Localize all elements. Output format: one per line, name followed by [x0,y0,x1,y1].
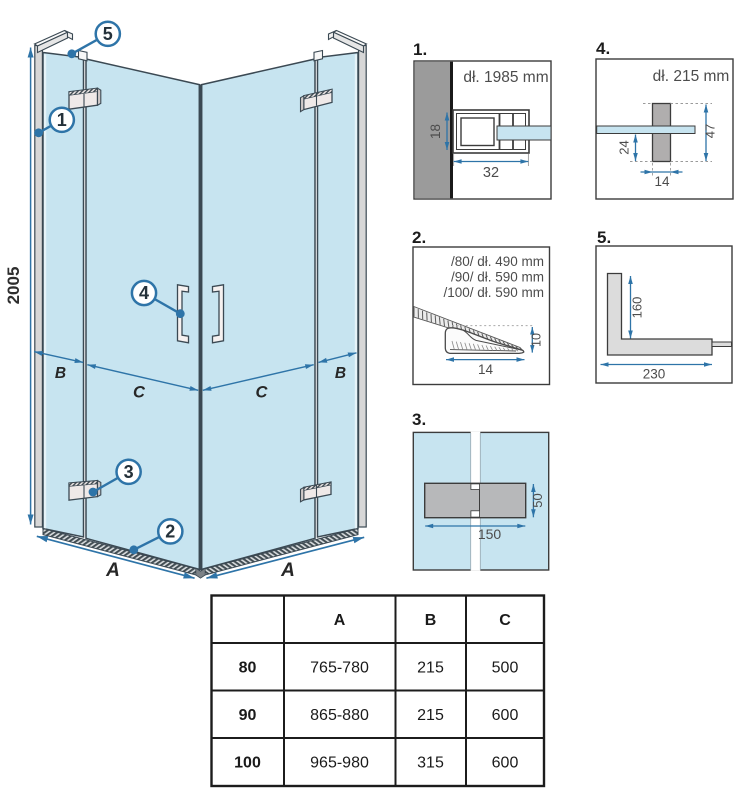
svg-text:1: 1 [57,110,67,130]
svg-text:5.: 5. [597,228,611,247]
svg-text:2.: 2. [412,228,426,247]
svg-text:32: 32 [483,165,499,181]
svg-text:600: 600 [492,707,519,724]
svg-text:965-980: 965-980 [310,755,369,772]
svg-text:dł. 1985 mm: dł. 1985 mm [463,69,548,86]
svg-text:90: 90 [239,707,257,724]
svg-text:160: 160 [630,297,645,319]
svg-text:B: B [335,365,346,382]
svg-text:50: 50 [530,493,545,507]
svg-text:215: 215 [417,707,444,724]
svg-text:215: 215 [417,660,444,677]
svg-text:2: 2 [165,521,175,541]
svg-text:1.: 1. [413,40,427,59]
svg-text:A: A [105,560,120,581]
svg-text:315: 315 [417,755,444,772]
svg-text:24: 24 [617,140,632,154]
svg-text:3: 3 [124,462,134,482]
svg-text:100: 100 [234,755,261,772]
svg-text:/80/ dł. 490 mm: /80/ dł. 490 mm [451,254,544,269]
svg-text:765-780: 765-780 [310,660,369,677]
svg-text:4.: 4. [596,39,610,58]
svg-text:dł. 215 mm: dł. 215 mm [653,68,730,85]
svg-text:A: A [280,560,295,581]
svg-text:500: 500 [492,660,519,677]
svg-text:B: B [425,612,437,629]
svg-text:C: C [133,384,146,402]
svg-text:600: 600 [492,755,519,772]
svg-text:C: C [256,384,269,402]
svg-text:3.: 3. [412,410,426,429]
svg-text:18: 18 [428,124,443,139]
svg-text:865-880: 865-880 [310,707,369,724]
svg-text:14: 14 [478,362,494,377]
svg-text:10: 10 [530,333,544,347]
svg-text:47: 47 [703,124,718,138]
svg-text:5: 5 [103,24,113,44]
svg-text:B: B [55,365,66,382]
svg-text:/100/ dł. 590 mm: /100/ dł. 590 mm [443,285,544,300]
svg-text:4: 4 [139,283,149,303]
svg-text:230: 230 [643,367,666,382]
svg-text:2005: 2005 [4,267,23,305]
svg-text:14: 14 [654,174,670,189]
svg-text:80: 80 [239,660,257,677]
svg-text:150: 150 [478,526,502,542]
svg-text:A: A [334,612,346,629]
svg-text:C: C [499,612,511,629]
svg-text:/90/ dł. 590 mm: /90/ dł. 590 mm [451,270,544,285]
